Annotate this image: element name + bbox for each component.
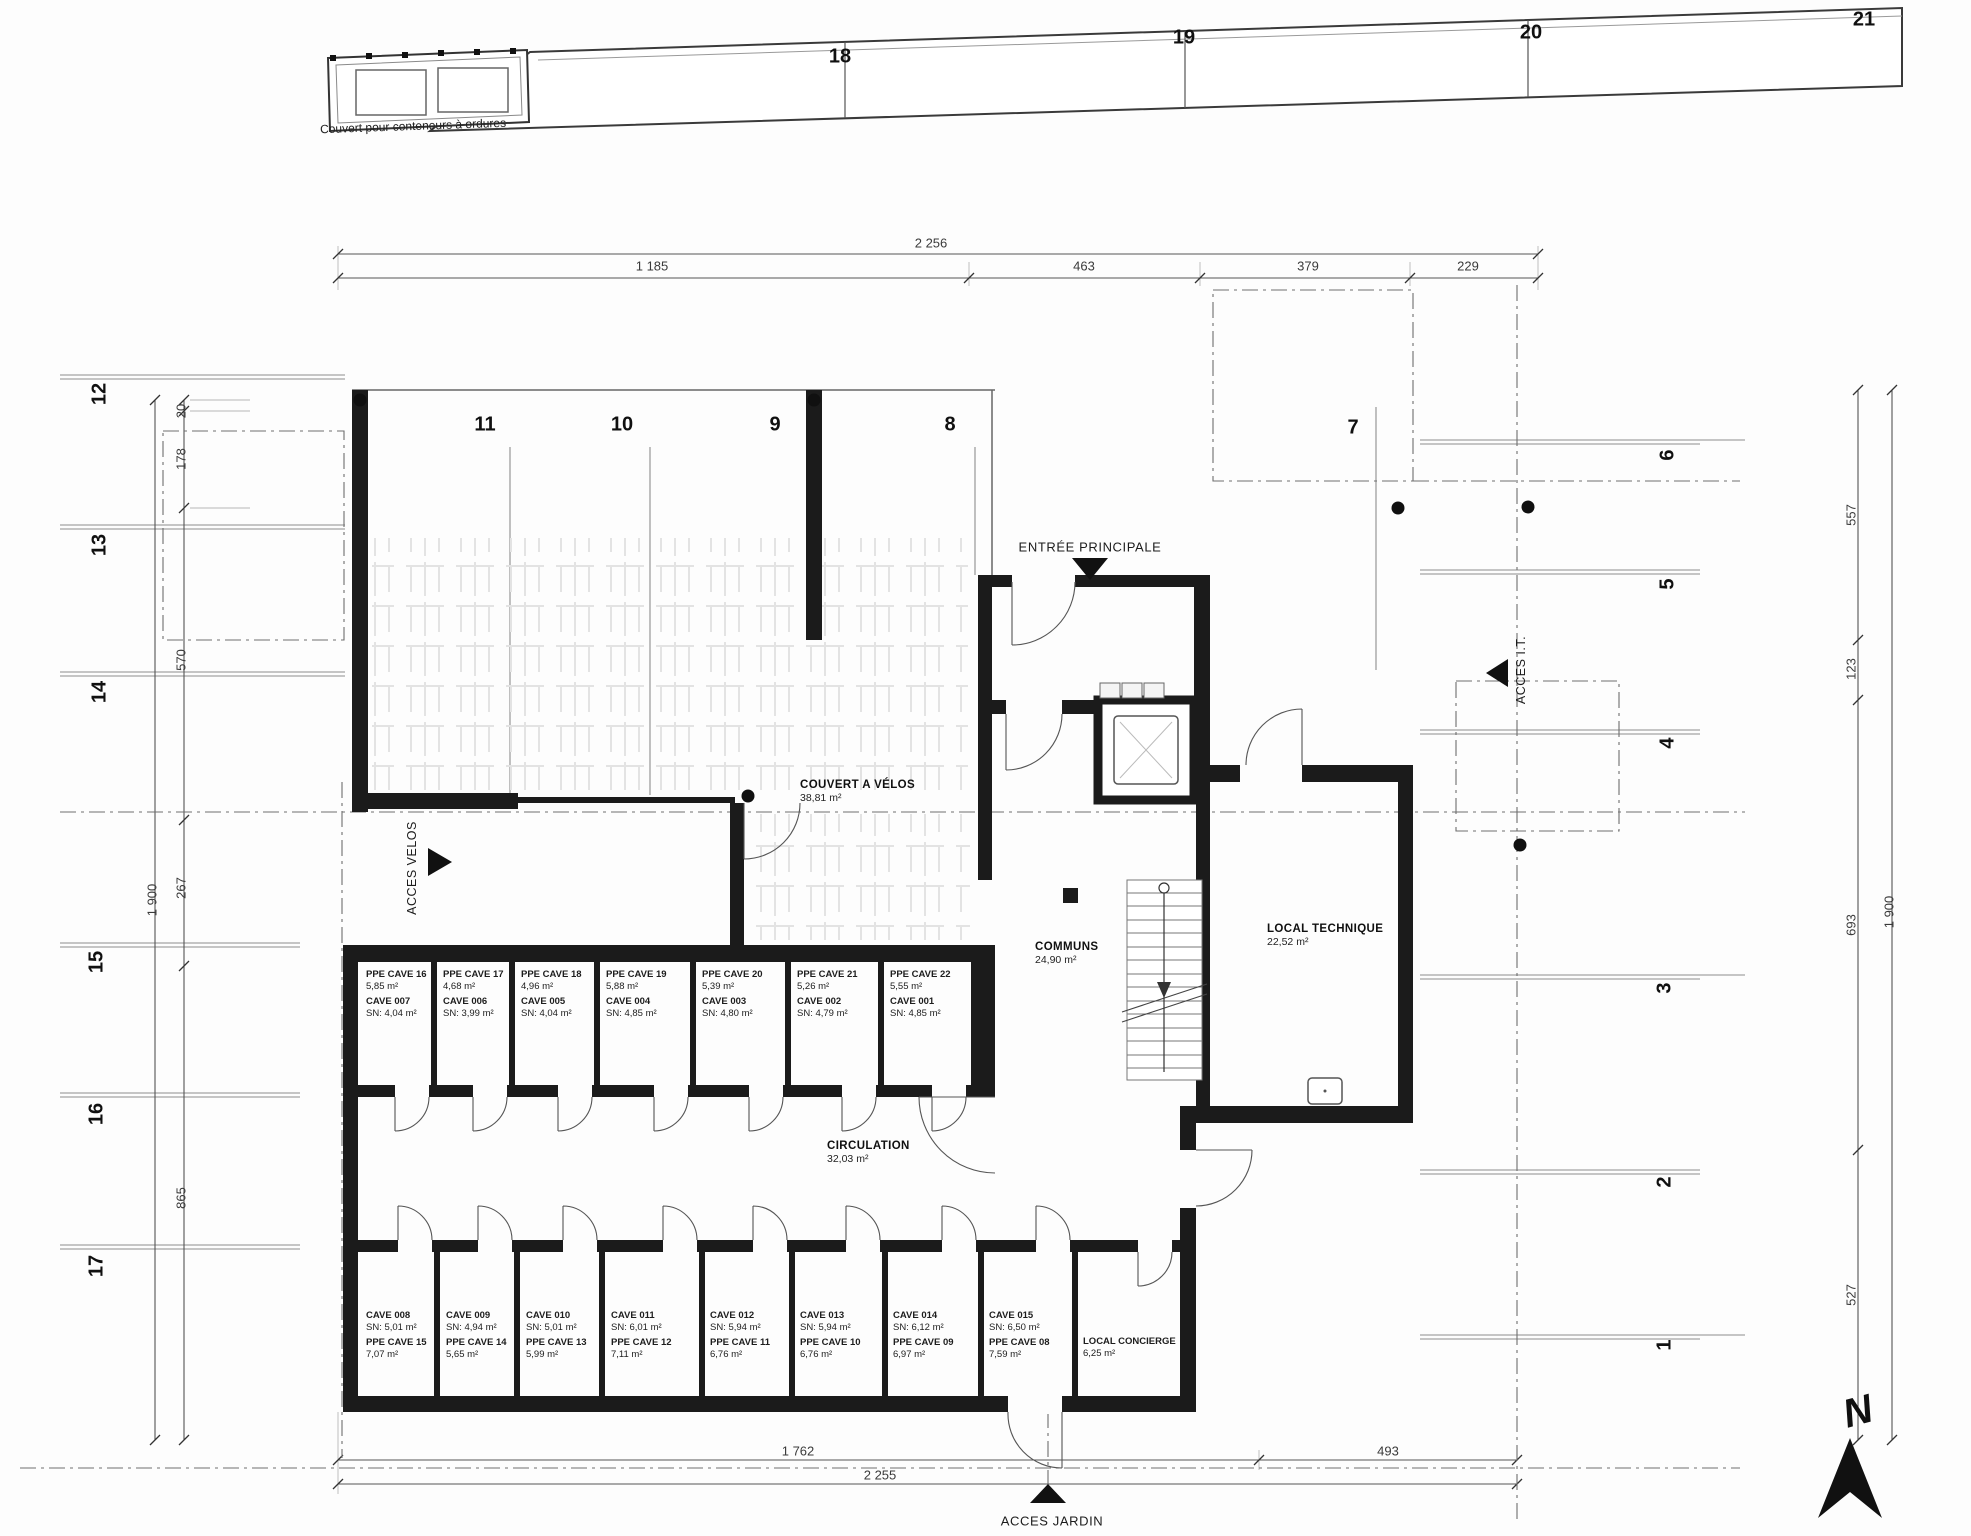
room-title: LOCAL TECHNIQUE: [1267, 922, 1383, 936]
grid-axis-18: 18: [829, 46, 851, 69]
cave-label: CAVE 010: [526, 1310, 587, 1322]
cave-cell-top-3: PPE CAVE 18 4,96 m² CAVE 005 SN: 4,04 m²: [521, 969, 582, 1020]
cave-cell-top-7: PPE CAVE 22 5,55 m² CAVE 001 SN: 4,85 m²: [890, 969, 951, 1020]
dim-left-seg-5: 865: [174, 1187, 189, 1209]
cave-label: CAVE 005: [521, 996, 582, 1008]
ppe-area: 6,76 m²: [710, 1349, 770, 1361]
top-strip: [430, 8, 1902, 131]
cave-sn: SN: 6,12 m²: [893, 1322, 954, 1334]
cave-label: CAVE 015: [989, 1310, 1050, 1322]
cave-label: CAVE 008: [366, 1310, 427, 1322]
dim-top-seg-4: 229: [1457, 259, 1479, 274]
north-arrow-icon: [1818, 1438, 1882, 1518]
cave-label: CAVE 003: [702, 996, 763, 1008]
grid-axis-5: 5: [1657, 578, 1680, 589]
cave-label: CAVE 013: [800, 1310, 861, 1322]
grid-axis-13: 13: [89, 534, 112, 556]
ppe-label: PPE CAVE 08: [989, 1337, 1050, 1349]
grid-axis-21: 21: [1853, 9, 1875, 32]
bike-racks: [372, 538, 970, 940]
dim-left-seg-1: 20: [174, 404, 189, 418]
ppe-label: PPE CAVE 22: [890, 969, 951, 981]
grid-axis-6: 6: [1657, 449, 1680, 460]
cave-sn: SN: 4,85 m²: [606, 1008, 667, 1020]
ppe-label: PPE CAVE 17: [443, 969, 504, 981]
room-concierge-label: LOCAL CONCIERGE 6,25 m²: [1083, 1336, 1176, 1360]
cave-sn: SN: 6,01 m²: [611, 1322, 672, 1334]
room-title: COUVERT A VÉLOS: [800, 778, 915, 792]
room-area: 32,03 m²: [827, 1153, 910, 1166]
cave-cell-bottom-2: CAVE 009 SN: 4,94 m² PPE CAVE 14 5,65 m²: [446, 1310, 507, 1361]
cave-label: CAVE 006: [443, 996, 504, 1008]
cave-label: CAVE 002: [797, 996, 858, 1008]
room-technical-label: LOCAL TECHNIQUE 22,52 m²: [1267, 922, 1383, 949]
ppe-area: 5,99 m²: [526, 1349, 587, 1361]
dim-right-total: 1 900: [1882, 896, 1897, 929]
room-commons-label: COMMUNS 24,90 m²: [1035, 940, 1099, 967]
room-bike-shelter-label: COUVERT A VÉLOS 38,81 m²: [800, 778, 915, 805]
it-access-label: ACCES I.T.: [1514, 636, 1528, 704]
cave-label: CAVE 011: [611, 1310, 672, 1322]
ppe-area: 7,07 m²: [366, 1349, 427, 1361]
cave-label: CAVE 004: [606, 996, 667, 1008]
dim-top-seg-2: 463: [1073, 259, 1095, 274]
ppe-area: 5,26 m²: [797, 981, 858, 993]
room-area: 22,52 m²: [1267, 936, 1383, 949]
grid-axis-4: 4: [1657, 737, 1680, 748]
ppe-area: 6,76 m²: [800, 1349, 861, 1361]
ppe-area: 7,59 m²: [989, 1349, 1050, 1361]
ppe-label: PPE CAVE 13: [526, 1337, 587, 1349]
garden-access-arrow-icon: [1030, 1484, 1066, 1503]
ppe-area: 7,11 m²: [611, 1349, 672, 1361]
cave-cell-bottom-5: CAVE 012 SN: 5,94 m² PPE CAVE 11 6,76 m²: [710, 1310, 770, 1361]
cave-sn: SN: 5,94 m²: [710, 1322, 770, 1334]
cave-sn: SN: 5,01 m²: [366, 1322, 427, 1334]
dim-left-seg-4: 267: [174, 877, 189, 899]
grid-axis-17: 17: [86, 1255, 109, 1277]
ppe-area: 5,65 m²: [446, 1349, 507, 1361]
stairs: [1122, 880, 1207, 1080]
cave-sn: SN: 3,99 m²: [443, 1008, 504, 1020]
cave-sn: SN: 5,94 m²: [800, 1322, 861, 1334]
cave-cell-bottom-3: CAVE 010 SN: 5,01 m² PPE CAVE 13 5,99 m²: [526, 1310, 587, 1361]
ppe-label: PPE CAVE 11: [710, 1337, 770, 1349]
ppe-label: PPE CAVE 18: [521, 969, 582, 981]
cave-sn: SN: 4,79 m²: [797, 1008, 858, 1020]
dim-right-seg-1: 557: [1844, 504, 1859, 526]
cave-sn: SN: 5,01 m²: [526, 1322, 587, 1334]
cave-cell-top-1: PPE CAVE 16 5,85 m² CAVE 007 SN: 4,04 m²: [366, 969, 427, 1020]
dim-right-seg-3: 693: [1844, 914, 1859, 936]
grid-axis-1: 1: [1654, 1339, 1677, 1350]
cave-sn: SN: 4,04 m²: [366, 1008, 427, 1020]
cave-label: CAVE 001: [890, 996, 951, 1008]
cave-sn: SN: 4,94 m²: [446, 1322, 507, 1334]
room-area: 6,25 m²: [1083, 1348, 1176, 1360]
cave-label: CAVE 007: [366, 996, 427, 1008]
dim-left-total: 1 900: [145, 884, 160, 917]
ppe-area: 5,55 m²: [890, 981, 951, 993]
dim-bottom-seg-1: 1 762: [782, 1444, 815, 1459]
ppe-label: PPE CAVE 21: [797, 969, 858, 981]
cave-cell-bottom-7: CAVE 014 SN: 6,12 m² PPE CAVE 09 6,97 m²: [893, 1310, 954, 1361]
garden-access-label: ACCES JARDIN: [1001, 1514, 1104, 1529]
ppe-label: PPE CAVE 12: [611, 1337, 672, 1349]
cave-cell-bottom-6: CAVE 013 SN: 5,94 m² PPE CAVE 10 6,76 m²: [800, 1310, 861, 1361]
ppe-area: 5,85 m²: [366, 981, 427, 993]
bike-access-label: ACCES VELOS: [405, 821, 419, 915]
cave-label: CAVE 012: [710, 1310, 770, 1322]
floorplan-linework: [0, 0, 1971, 1536]
grid-axis-7: 7: [1347, 417, 1358, 440]
ppe-area: 5,39 m²: [702, 981, 763, 993]
room-circulation-label: CIRCULATION 32,03 m²: [827, 1139, 910, 1166]
ppe-label: PPE CAVE 16: [366, 969, 427, 981]
dim-left-seg-2: 178: [174, 448, 189, 470]
elevator: [1098, 700, 1194, 800]
cave-sn: SN: 4,04 m²: [521, 1008, 582, 1020]
dim-right-seg-2: 123: [1844, 658, 1859, 680]
ppe-label: PPE CAVE 19: [606, 969, 667, 981]
room-area: 24,90 m²: [1035, 954, 1099, 967]
ppe-label: PPE CAVE 10: [800, 1337, 861, 1349]
grid-axis-12: 12: [89, 383, 112, 405]
room-title: LOCAL CONCIERGE: [1083, 1336, 1176, 1348]
grid-axis-11: 11: [474, 414, 495, 437]
grid-axis-9: 9: [769, 414, 780, 437]
dim-right-seg-4: 527: [1844, 1284, 1859, 1306]
ppe-label: PPE CAVE 09: [893, 1337, 954, 1349]
dim-left-seg-3: 570: [174, 649, 189, 671]
cave-cell-bottom-8: CAVE 015 SN: 6,50 m² PPE CAVE 08 7,59 m²: [989, 1310, 1050, 1361]
room-area: 38,81 m²: [800, 792, 915, 805]
room-title: CIRCULATION: [827, 1139, 910, 1153]
cave-sn: SN: 4,85 m²: [890, 1008, 951, 1020]
dim-bottom-total: 2 255: [864, 1468, 897, 1483]
cave-cell-bottom-4: CAVE 011 SN: 6,01 m² PPE CAVE 12 7,11 m²: [611, 1310, 672, 1361]
cave-cell-top-4: PPE CAVE 19 5,88 m² CAVE 004 SN: 4,85 m²: [606, 969, 667, 1020]
dim-bottom-seg-2: 493: [1377, 1444, 1399, 1459]
grid-axis-3: 3: [1654, 982, 1677, 993]
grid-axis-19: 19: [1173, 27, 1195, 50]
cave-sn: SN: 6,50 m²: [989, 1322, 1050, 1334]
cave-sn: SN: 4,80 m²: [702, 1008, 763, 1020]
ppe-area: 4,68 m²: [443, 981, 504, 993]
grid-axis-15: 15: [86, 951, 109, 973]
main-entrance-label: ENTRÉE PRINCIPALE: [1019, 540, 1162, 555]
dim-top-total: 2 256: [915, 236, 948, 251]
grid-axis-10: 10: [611, 414, 633, 437]
it-access-arrow-icon: [1486, 659, 1508, 687]
grid-axis-2: 2: [1654, 1176, 1677, 1187]
cave-label: CAVE 014: [893, 1310, 954, 1322]
cave-cell-top-5: PPE CAVE 20 5,39 m² CAVE 003 SN: 4,80 m²: [702, 969, 763, 1020]
cave-cell-bottom-1: CAVE 008 SN: 5,01 m² PPE CAVE 15 7,07 m²: [366, 1310, 427, 1361]
ppe-label: PPE CAVE 20: [702, 969, 763, 981]
dim-top-seg-3: 379: [1297, 259, 1319, 274]
ppe-label: PPE CAVE 15: [366, 1337, 427, 1349]
ppe-area: 6,97 m²: [893, 1349, 954, 1361]
ppe-label: PPE CAVE 14: [446, 1337, 507, 1349]
grid-axis-20: 20: [1520, 22, 1542, 45]
grid-axis-8: 8: [944, 414, 955, 437]
ppe-area: 5,88 m²: [606, 981, 667, 993]
grid-axis-14: 14: [89, 681, 112, 703]
cave-label: CAVE 009: [446, 1310, 507, 1322]
dim-top-seg-1: 1 185: [636, 259, 669, 274]
floorplan-canvas: 18 19 20 21 11 10 9 8 7 12 13 14 15 16 1…: [0, 0, 1971, 1536]
grid-axis-16: 16: [86, 1103, 109, 1125]
bike-access-arrow-icon: [428, 848, 452, 876]
cave-cell-top-6: PPE CAVE 21 5,26 m² CAVE 002 SN: 4,79 m²: [797, 969, 858, 1020]
ppe-area: 4,96 m²: [521, 981, 582, 993]
room-title: COMMUNS: [1035, 940, 1099, 954]
cave-cell-top-2: PPE CAVE 17 4,68 m² CAVE 006 SN: 3,99 m²: [443, 969, 504, 1020]
